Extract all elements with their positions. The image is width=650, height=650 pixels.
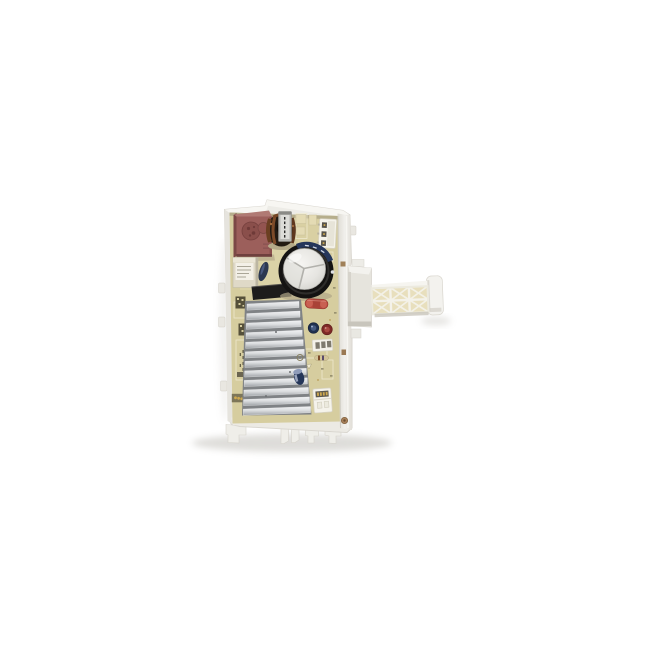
standing-capacitor	[279, 212, 292, 242]
relay-label	[236, 263, 254, 280]
stamp-circle	[242, 222, 260, 240]
power-resistor	[305, 298, 328, 309]
screw-mark	[341, 262, 346, 267]
product-photo: Product photo of a washing machine inver…	[0, 0, 650, 650]
connector-bottom	[313, 388, 333, 413]
connector-middle	[312, 339, 333, 352]
screw-mark	[342, 350, 347, 356]
mounting-flange	[348, 260, 372, 339]
capacitor-red-small	[322, 324, 333, 335]
qr-code	[236, 297, 246, 309]
pcb-assembly-image: Product photo of a washing machine inver…	[0, 0, 650, 650]
heatsink	[242, 300, 312, 416]
relay	[233, 258, 258, 288]
capacitor-blue-small	[308, 323, 319, 334]
foot	[281, 428, 289, 444]
resistor-small	[315, 356, 329, 361]
connector-top	[317, 219, 337, 249]
